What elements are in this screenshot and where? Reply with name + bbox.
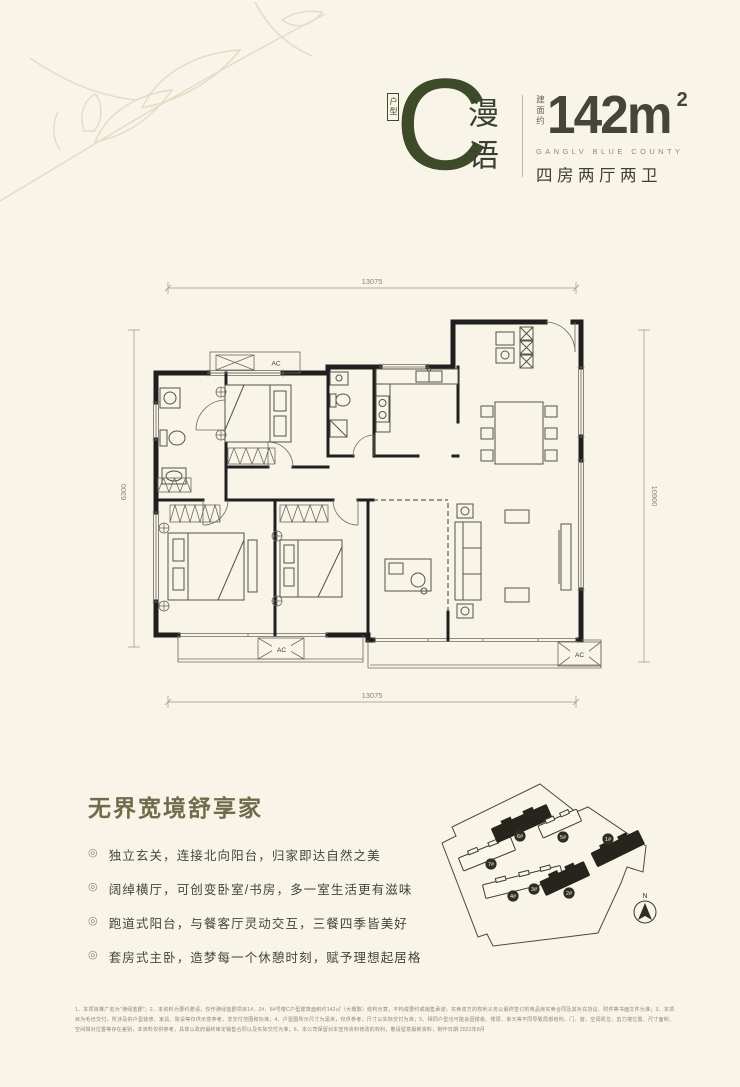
disclaimer-section: 1、本项目推广名为“港绿蓝郡”；2、本资料为要约邀请，仅作港绿蓝郡项目1#、2#…: [75, 1005, 675, 1050]
leaf-stem: [0, 14, 325, 208]
svg-text:AC: AC: [277, 647, 286, 654]
bed-icon: [225, 385, 291, 442]
features-title: 无界宽境舒享家: [88, 789, 468, 823]
siteplan-map: 6# 5# 7# 1# 3# 4# 2# N: [430, 772, 685, 990]
dining-table-icon: [481, 402, 557, 464]
header-divider: [522, 95, 523, 177]
svg-text:5#: 5#: [560, 835, 567, 841]
decorative-leaves: [0, 0, 340, 230]
feature-item: ◎ 独立玄关，连接北向阳台，归家即达自然之美: [88, 845, 468, 864]
feature-item: ◎ 阔绰横厅，可创变卧室/书房，多一室生活更有滋味: [88, 879, 468, 898]
bullet-icon: ◎: [88, 880, 99, 893]
tv-cabinet-icon: [559, 524, 571, 590]
north-label: N: [642, 893, 647, 900]
feature-text: 套房式主卧，造梦每一个休憩时刻，赋予理想起居格: [109, 947, 422, 966]
project-name-en: GANGLV BLUE COUNTY: [536, 147, 701, 156]
svg-text:3#: 3#: [531, 887, 538, 893]
area-group: 建面约 142m 2 GANGLV BLUE COUNTY 四房两厅两卫: [536, 88, 701, 186]
building-badge-5: 5#: [557, 831, 568, 842]
feature-item: ◎ 跑道式阳台，与餐客厅灵动交互，三餐四季皆美好: [88, 913, 468, 932]
area-prefix: 建面约: [536, 95, 545, 127]
sofa-icon: [455, 504, 481, 618]
ac-platform-label: AC: [271, 361, 280, 368]
svg-text:4#: 4#: [510, 894, 517, 900]
area-value: 142m: [547, 88, 671, 142]
svg-text:AC: AC: [575, 652, 584, 659]
building-1: [590, 828, 645, 867]
bathroom-fixtures: [330, 372, 350, 437]
dimension-lines: [128, 282, 650, 708]
features-list: ◎ 独立玄关，连接北向阳台，归家即达自然之美 ◎ 阔绰横厅，可创变卧室/书房，多…: [88, 845, 468, 966]
building-badge-6: 6#: [514, 830, 525, 841]
building-badge-3: 3#: [528, 883, 539, 894]
dim-top: 13075: [362, 277, 383, 286]
building-badge-4: 4#: [507, 890, 518, 901]
svg-text:2#: 2#: [566, 891, 573, 897]
ac-unit-icon: AC: [258, 638, 304, 659]
feature-text: 阔绰横厅，可创变卧室/书房，多一室生活更有滋味: [109, 879, 413, 898]
coffee-table-icon: [505, 510, 529, 523]
building-badge-1: 1#: [602, 833, 613, 844]
dim-left: 6300: [119, 484, 128, 501]
desk-icon: [385, 559, 431, 594]
svg-text:6#: 6#: [517, 834, 524, 840]
dim-bottom: 13075: [362, 691, 383, 700]
bullet-icon: ◎: [88, 914, 99, 927]
dim-right: 10900: [650, 486, 659, 507]
room-layout-label: 四房两厅两卫: [536, 162, 701, 186]
unit-type-name: 漫语: [465, 97, 496, 181]
bathroom-fixtures: [160, 388, 186, 484]
feature-text: 跑道式阳台，与餐客厅灵动交互，三餐四季皆美好: [109, 913, 408, 932]
unit-header: 户型 C 漫语 建面约 142m 2 GANGLV BLUE COUNTY 四房…: [385, 75, 695, 200]
building-badge-7: 7#: [485, 858, 496, 869]
coffee-table-icon: [505, 588, 529, 602]
ac-unit-icon: AC: [558, 642, 601, 666]
features-section: 无界宽境舒享家 ◎ 独立玄关，连接北向阳台，归家即达自然之美 ◎ 阔绰横厅，可创…: [88, 789, 468, 981]
bed-icon: [168, 533, 257, 600]
bed-icon: [280, 540, 342, 597]
area-superscript: 2: [677, 89, 688, 112]
wardrobe-icons: [158, 448, 328, 522]
entry-cabinet-icon: [496, 327, 533, 368]
north-arrow-icon: N: [634, 893, 656, 923]
feature-item: ◎ 套房式主卧，造梦每一个休憩时刻，赋予理想起居格: [88, 947, 468, 966]
floorplan-drawing: 13075 13075 6300 10900: [118, 272, 660, 708]
building-badge-2: 2#: [563, 887, 574, 898]
disclaimer-text: 1、本项目推广名为“港绿蓝郡”；2、本资料为要约邀请，仅作港绿蓝郡项目1#、2#…: [75, 1005, 674, 1034]
flyer-page: 户型 C 漫语 建面约 142m 2 GANGLV BLUE COUNTY 四房…: [0, 0, 740, 1087]
svg-text:7#: 7#: [488, 862, 495, 868]
svg-text:1#: 1#: [605, 837, 612, 843]
bullet-icon: ◎: [88, 846, 99, 859]
flex-room-dashed-walls: [373, 500, 448, 612]
bullet-icon: ◎: [88, 948, 99, 961]
feature-text: 独立玄关，连接北向阳台，归家即达自然之美: [109, 845, 381, 864]
kitchen-counter-icon: [376, 368, 458, 432]
